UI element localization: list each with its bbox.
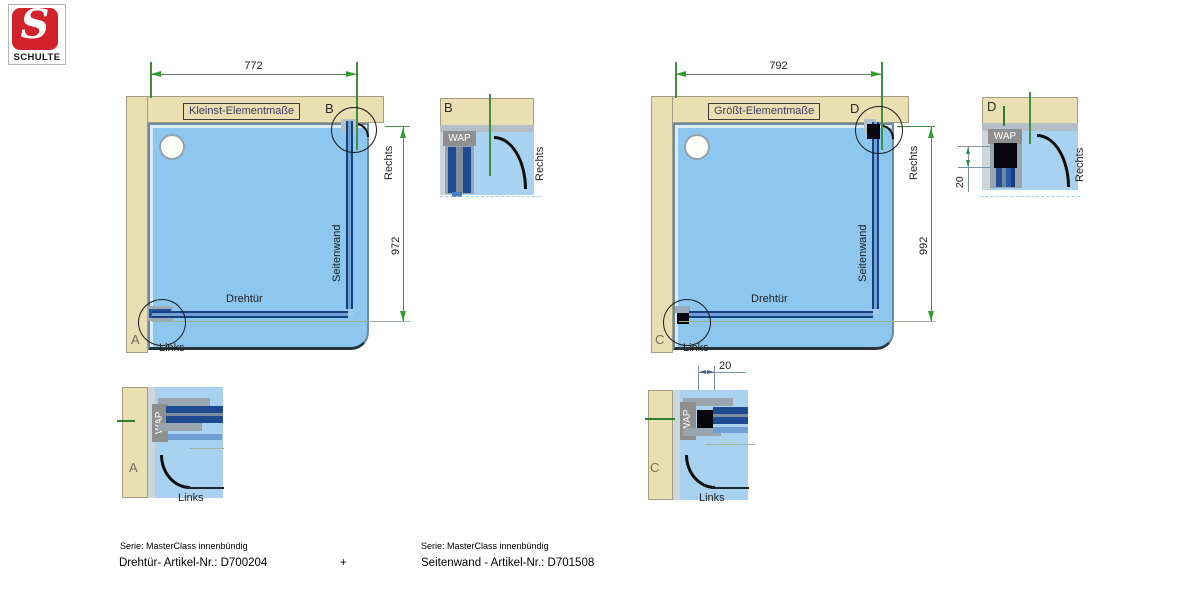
right-width-dim-label: 792 bbox=[675, 60, 882, 72]
detail-c-glass-tab bbox=[713, 427, 748, 433]
right-width-extension-left bbox=[675, 62, 677, 98]
detail-b-glass bbox=[448, 147, 471, 193]
detail-c-extension-stub bbox=[645, 418, 675, 420]
right-sidewall-label: Seitenwand bbox=[857, 190, 869, 282]
schulte-logo: S SCHULTE bbox=[8, 4, 66, 65]
left-detail-top-letter: B bbox=[325, 101, 334, 116]
right-drain bbox=[684, 134, 710, 160]
footer-right-article: Seitenwand - Artikel-Nr.: D701508 bbox=[421, 557, 594, 569]
right-door-glass bbox=[689, 311, 873, 318]
left-rechts-label: Rechts bbox=[383, 128, 395, 180]
right-links-label: Links bbox=[683, 342, 709, 354]
right-title-box: Größt-Elementmaße bbox=[708, 103, 820, 120]
right-detail-top-circle bbox=[855, 106, 903, 154]
schulte-s-glyph: S bbox=[12, 2, 58, 48]
detail-b-bottom-mark bbox=[440, 196, 540, 197]
detail-a-extension-stub bbox=[117, 420, 135, 422]
detail-c-letter: C bbox=[650, 460, 659, 475]
left-height-extension-top bbox=[385, 126, 410, 127]
left-sidewall-label: Seitenwand bbox=[331, 190, 343, 282]
detail-d-glass bbox=[996, 168, 1015, 187]
footer-left-series: Serie: MasterClass innenbündig bbox=[120, 541, 248, 551]
right-rechts-label: Rechts bbox=[908, 128, 920, 180]
right-detail-top-letter: D bbox=[850, 101, 859, 116]
left-height-arrow-bottom-icon bbox=[400, 311, 406, 321]
left-width-dim-line bbox=[150, 74, 357, 75]
detail-a-glass bbox=[166, 406, 223, 423]
left-door-label: Drehtür bbox=[226, 293, 263, 305]
detail-c-edge-strip bbox=[673, 390, 680, 500]
left-width-extension-left bbox=[150, 62, 152, 98]
right-width-dim-line bbox=[675, 74, 882, 75]
detail-b-wap-label: WAP bbox=[443, 131, 476, 146]
detail-b-rechts-label: Rechts bbox=[534, 129, 546, 181]
left-width-arrow-right-icon bbox=[346, 71, 356, 77]
left-width-dim-label: 772 bbox=[150, 60, 357, 72]
detail-c-gap-block bbox=[697, 410, 713, 428]
datasheet-page: S SCHULTE Kleinst-Elementmaße Drehtür Se… bbox=[0, 0, 1196, 600]
footer-plus-sign: + bbox=[340, 557, 347, 569]
detail-d-rechts-label: Rechts bbox=[1074, 130, 1086, 182]
footer-left-article: Drehtür- Artikel-Nr.: D700204 bbox=[119, 557, 267, 569]
detail-d-gap-arrow-up-icon bbox=[966, 147, 970, 154]
left-detail-bottom-letter: A bbox=[131, 332, 140, 347]
left-height-extension-bottom bbox=[152, 321, 410, 322]
detail-c-extension-line bbox=[705, 444, 755, 445]
right-width-arrow-left-icon bbox=[676, 71, 686, 77]
right-height-dim-label: 992 bbox=[918, 203, 930, 255]
right-height-arrow-top-icon bbox=[928, 128, 934, 138]
detail-a-wall bbox=[122, 387, 148, 498]
detail-c-links-label: Links bbox=[699, 492, 725, 504]
detail-d-wap-label: WAP bbox=[988, 129, 1022, 144]
detail-a-glass-tab bbox=[168, 434, 222, 440]
schulte-logo-icon: S bbox=[12, 8, 58, 50]
left-links-label: Links bbox=[159, 342, 185, 354]
detail-c-gap-arrow-left-icon bbox=[699, 370, 706, 374]
detail-c-gap-label: 20 bbox=[719, 360, 731, 372]
left-height-dim-label: 972 bbox=[390, 203, 402, 255]
detail-a-letter: A bbox=[129, 460, 138, 475]
footer-right-series: Serie: MasterClass innenbündig bbox=[421, 541, 549, 551]
detail-a-profile-bottom-bar bbox=[158, 423, 202, 431]
right-door-label: Drehtür bbox=[751, 293, 788, 305]
detail-d-bottom-mark bbox=[980, 196, 1080, 197]
right-detail-bottom-circle bbox=[663, 299, 711, 346]
detail-d-gap-extension-top bbox=[958, 146, 990, 147]
schulte-brand-text: SCHULTE bbox=[9, 52, 65, 63]
right-width-arrow-right-icon bbox=[871, 71, 881, 77]
detail-d-gap-block bbox=[994, 143, 1017, 168]
left-width-arrow-left-icon bbox=[151, 71, 161, 77]
detail-b-wall bbox=[440, 98, 534, 126]
left-height-dim-line bbox=[403, 127, 404, 322]
right-detail-bottom-letter: C bbox=[655, 332, 664, 347]
left-height-arrow-top-icon bbox=[400, 128, 406, 138]
detail-b-centerline bbox=[489, 94, 491, 176]
detail-b-letter: B bbox=[444, 100, 453, 115]
left-title-box: Kleinst-Elementmaße bbox=[183, 103, 300, 120]
detail-d-gap-label: 20 bbox=[954, 168, 966, 188]
detail-d-centerline bbox=[1029, 92, 1031, 144]
detail-d-extension-stub bbox=[1003, 106, 1005, 126]
left-detail-bottom-circle bbox=[138, 299, 186, 346]
detail-d-gap-arrow-down-icon bbox=[966, 160, 970, 167]
detail-a-extension-line bbox=[190, 448, 224, 449]
detail-c-gap-arrow-right-icon bbox=[707, 370, 714, 374]
left-drain bbox=[159, 134, 185, 160]
detail-d-letter: D bbox=[987, 99, 996, 114]
right-height-dim-line bbox=[931, 127, 932, 322]
left-detail-top-circle bbox=[331, 107, 377, 153]
detail-c-tray-edge bbox=[711, 487, 749, 489]
detail-a-links-label: Links bbox=[178, 492, 204, 504]
right-height-extension-bottom bbox=[679, 321, 936, 322]
detail-c-glass bbox=[713, 407, 748, 424]
detail-a-tray-edge bbox=[186, 487, 224, 489]
detail-c-wall bbox=[648, 390, 673, 500]
right-height-arrow-bottom-icon bbox=[928, 311, 934, 321]
